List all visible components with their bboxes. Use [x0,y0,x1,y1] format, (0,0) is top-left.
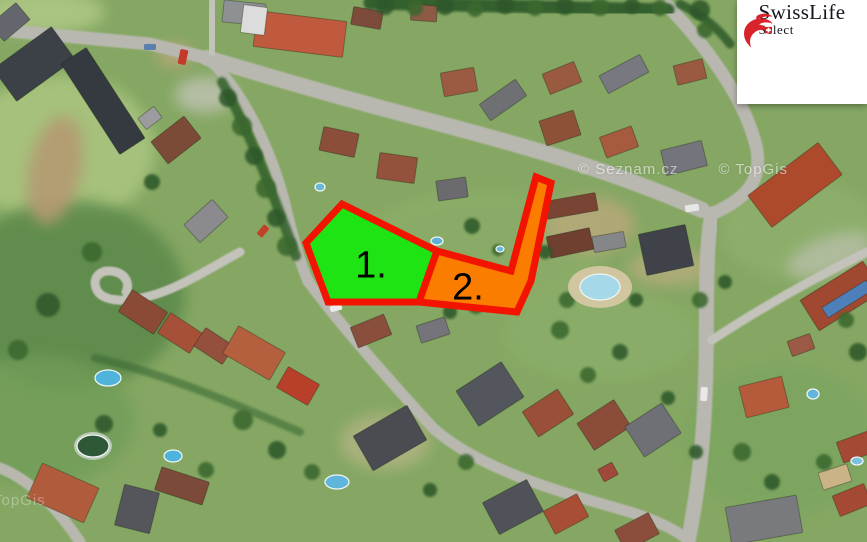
aerial-map: 1. 2. © Seznam.cz © TopGis TopGis SwissL… [0,0,867,542]
swisslife-flame-icon [737,10,775,52]
swisslife-select-logo: SwissLife Select [737,0,867,104]
